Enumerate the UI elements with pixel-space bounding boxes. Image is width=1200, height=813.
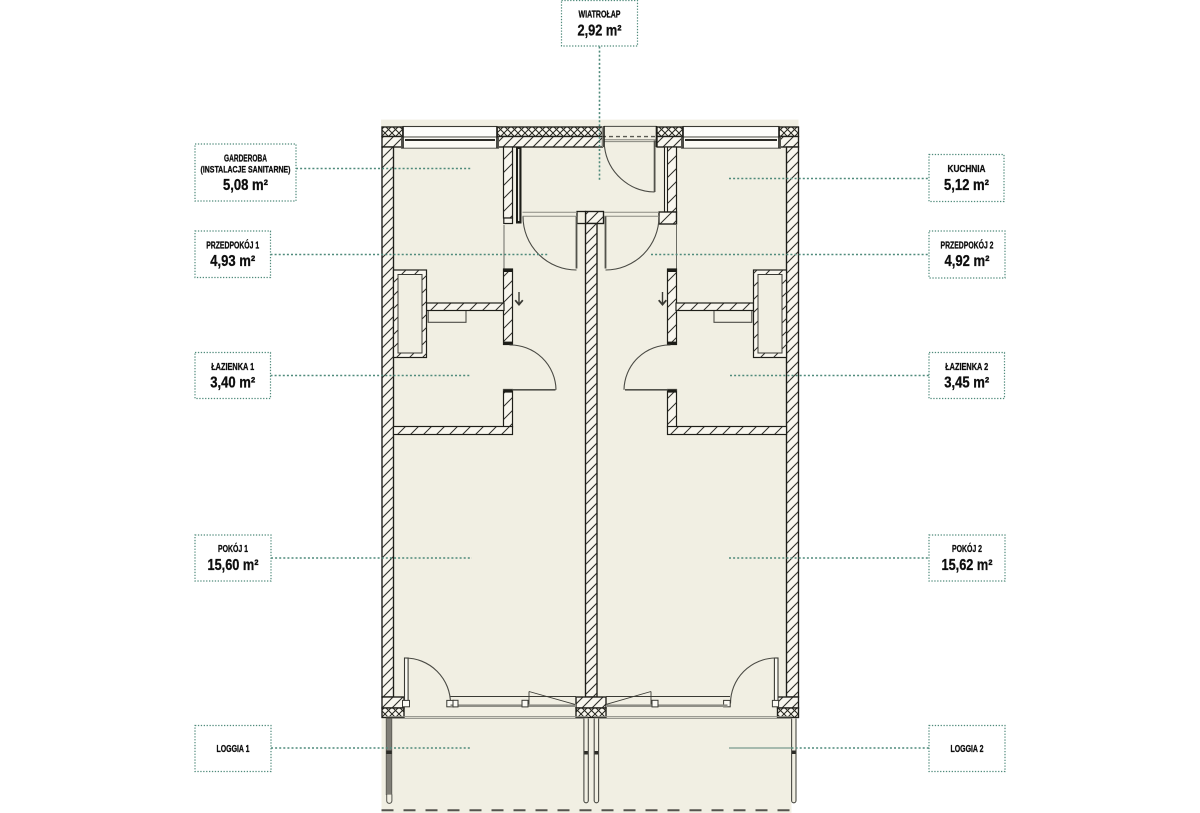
svg-text:LOGGIA 2: LOGGIA 2: [951, 744, 984, 755]
svg-text:2,92 m²: 2,92 m²: [578, 23, 622, 40]
svg-text:3,40 m²: 3,40 m²: [210, 375, 255, 392]
svg-text:POKÓJ 2: POKÓJ 2: [952, 542, 982, 555]
svg-text:PRZEDPOKÓJ 2: PRZEDPOKÓJ 2: [941, 239, 994, 252]
svg-text:(INSTALACJE SANITARNE): (INSTALACJE SANITARNE): [201, 165, 291, 176]
svg-text:LOGGIA 1: LOGGIA 1: [217, 744, 250, 755]
svg-text:15,62 m²: 15,62 m²: [942, 557, 993, 574]
svg-text:3,45 m²: 3,45 m²: [944, 375, 989, 392]
svg-text:5,08 m²: 5,08 m²: [223, 177, 268, 194]
svg-text:GARDEROBA: GARDEROBA: [224, 154, 267, 165]
svg-text:4,92 m²: 4,92 m²: [945, 253, 990, 270]
svg-text:WIATROŁAP: WIATROŁAP: [579, 10, 621, 21]
svg-text:PRZEDPOKÓJ 1: PRZEDPOKÓJ 1: [206, 239, 259, 252]
svg-text:POKÓJ 1: POKÓJ 1: [218, 542, 248, 555]
svg-text:KUCHNIA: KUCHNIA: [948, 164, 986, 175]
svg-text:ŁAZIENKA 1: ŁAZIENKA 1: [211, 362, 254, 373]
svg-text:4,93 m²: 4,93 m²: [210, 253, 255, 270]
svg-text:ŁAZIENKA 2: ŁAZIENKA 2: [945, 362, 988, 373]
svg-text:15,60 m²: 15,60 m²: [208, 557, 259, 574]
svg-text:5,12 m²: 5,12 m²: [944, 177, 989, 194]
